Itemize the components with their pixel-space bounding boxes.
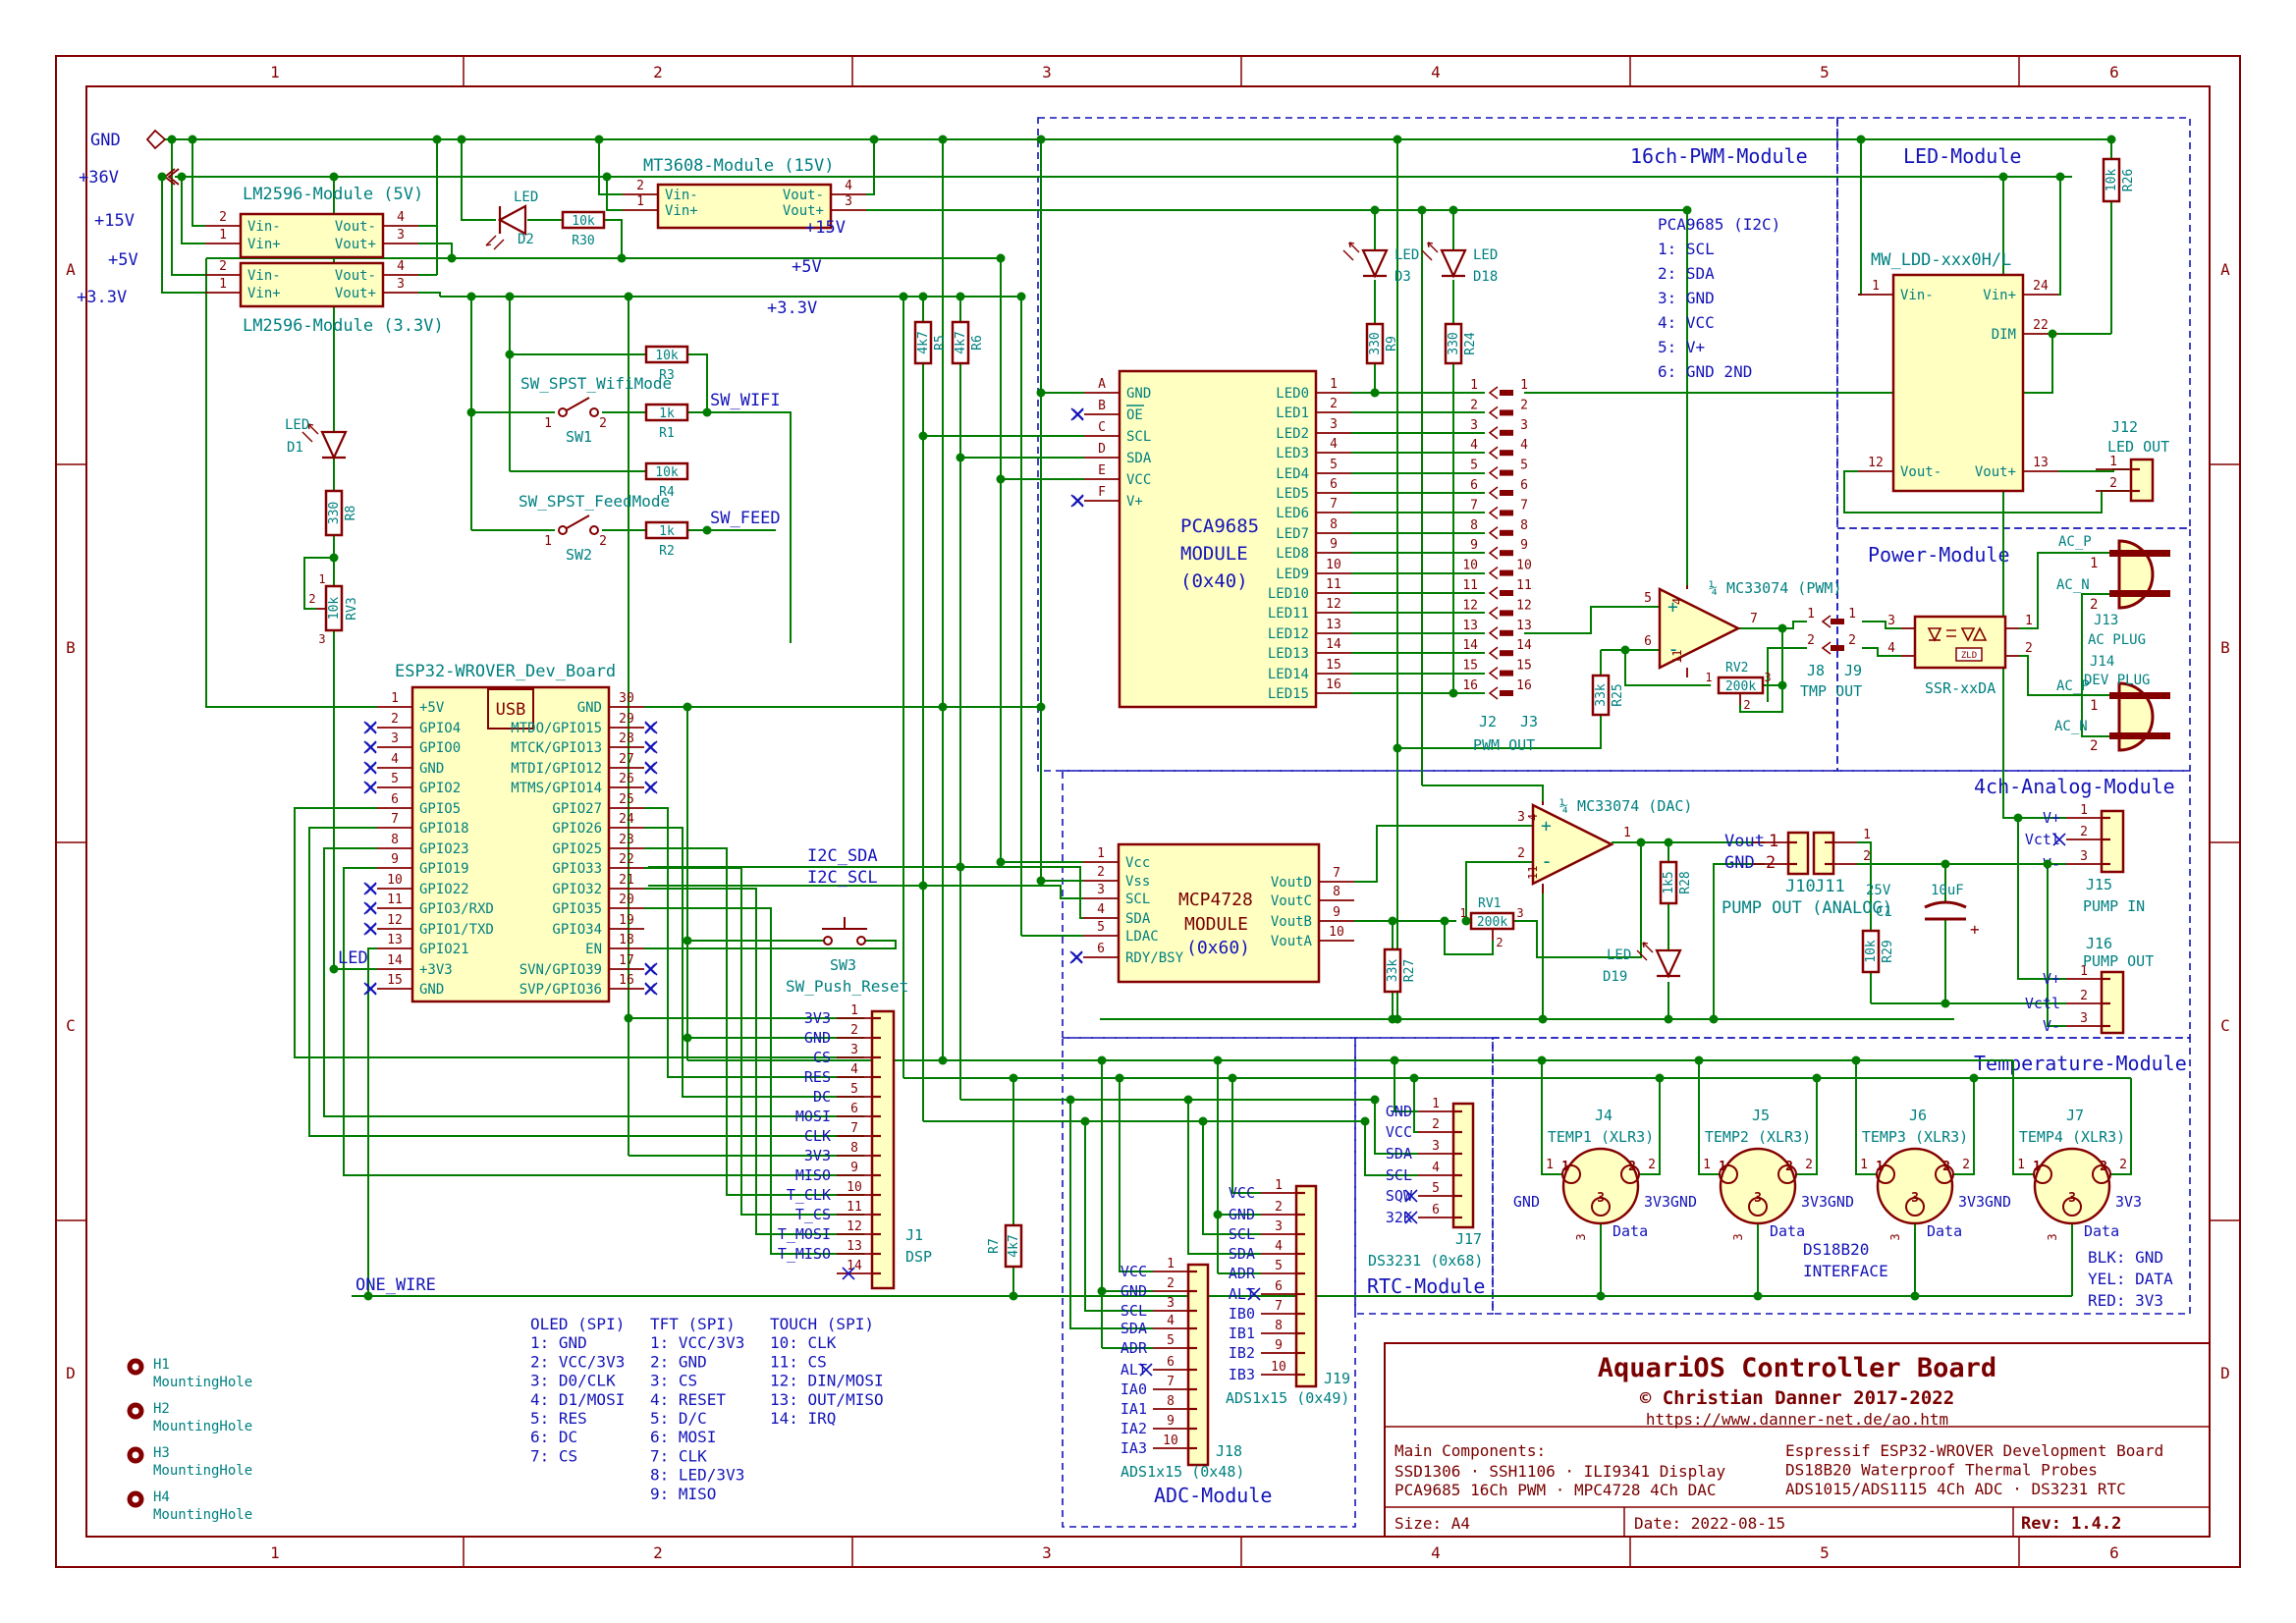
svg-text:28: 28 [619,731,634,746]
svg-text:ALT: ALT [1121,1361,1147,1379]
svg-text:GPIO33: GPIO33 [552,861,602,877]
svg-text:2: 2 [1517,846,1525,861]
svg-text:J3: J3 [1520,713,1538,730]
svg-text:RV1: RV1 [1478,896,1501,911]
svg-text:J14: J14 [2090,654,2114,670]
hole-H4: H4MountingHole [128,1489,253,1523]
svg-text:GPIO34: GPIO34 [552,922,602,938]
svg-text:T_CS: T_CS [795,1206,831,1223]
svg-text:Vout-: Vout- [335,268,376,284]
svg-text:AC_N: AC_N [2056,577,2090,593]
svg-text:10: 10 [847,1180,862,1195]
svg-text:+3.3V: +3.3V [767,298,817,318]
svg-text:3V3: 3V3 [2115,1193,2142,1211]
svg-text:2: 2 [2080,825,2088,839]
svg-text:3: 3 [1520,418,1528,433]
svg-text:SCL: SCL [1386,1166,1412,1184]
svg-text:+15V: +15V [94,211,135,231]
svg-text:R8: R8 [344,506,358,521]
svg-text:ADS1015/ADS1115 4Ch ADC · DS32: ADS1015/ADS1115 4Ch ADC · DS3231 RTC [1785,1480,2126,1498]
svg-text:Data: Data [1927,1222,1962,1240]
svg-text:11: CS: 11: CS [770,1352,827,1371]
svg-text:1: 1 [1807,607,1815,622]
svg-text:V+: V+ [2043,970,2060,988]
svg-text:5: 5 [1330,458,1338,472]
svg-text:V+: V+ [2043,809,2060,827]
svg-text:MTMS/GPIO14: MTMS/GPIO14 [511,781,602,796]
svg-text:SW_FEED: SW_FEED [710,509,781,528]
svg-text:14: 14 [847,1259,862,1273]
svg-text:VCC: VCC [1126,472,1151,488]
svg-text:Rev: 1.4.2: Rev: 1.4.2 [2021,1514,2121,1534]
svg-text:3: 3 [1097,883,1105,897]
svg-text:SCL: SCL [1126,429,1151,445]
svg-text:GPIO27: GPIO27 [552,801,602,817]
svg-text:MTDO/GPIO15: MTDO/GPIO15 [511,721,602,736]
svg-text:6: 6 [391,792,399,807]
svg-text:9: 9 [1470,538,1478,553]
svg-text:PUMP OUT: PUMP OUT [2083,952,2154,970]
svg-text:DS18B20: DS18B20 [1803,1240,1869,1259]
svg-text:ADC-Module: ADC-Module [1154,1484,1272,1507]
svg-text:Vout-: Vout- [335,219,376,235]
svg-text:Vin+: Vin+ [247,286,281,301]
svg-text:GND: GND [1985,1193,2011,1211]
svg-text:2: 2 [599,416,607,431]
svg-text:1: 1 [219,228,227,243]
svg-text:SW2: SW2 [566,546,592,564]
svg-text:3: 3 [1574,1233,1588,1240]
svg-text:27: 27 [619,752,634,767]
svg-text:OE: OE [1126,407,1143,423]
svg-text:4: 4 [850,1062,858,1077]
resistor-R26: 10kR26 [2104,159,2136,201]
svg-text:Vout-: Vout- [783,188,824,203]
svg-text:5: 5 [1432,1181,1440,1196]
svg-text:2: 2 [636,179,644,193]
svg-text:SW_SPST_FeedMode: SW_SPST_FeedMode [519,492,670,511]
svg-text:5: 5 [850,1082,858,1097]
svg-text:SW3: SW3 [830,956,856,974]
svg-text:8: 8 [1520,518,1528,533]
svg-text:1k5: 1k5 [1662,871,1676,893]
svg-text:Size: A4: Size: A4 [1394,1514,1470,1533]
svg-text:GND: GND [419,982,444,998]
svg-text:4: 4 [1431,63,1441,81]
svg-text:10uF: 10uF [1931,883,1964,898]
svg-text:3: 3 [397,277,405,292]
svg-text:GPIO3/RXD: GPIO3/RXD [419,901,494,917]
svg-text:J16: J16 [2086,935,2112,952]
svg-text:18: 18 [619,933,634,947]
svg-text:2: 2 [1097,865,1105,880]
svg-text:15: 15 [1462,659,1478,674]
svg-text:10k: 10k [2105,169,2119,192]
svg-text:C: C [2220,1016,2230,1035]
svg-text:PUMP IN: PUMP IN [2083,897,2145,915]
svg-text:4: 4 [1431,1543,1441,1562]
svg-text:8: 8 [1470,518,1478,533]
svg-text:PCA9685 (I2C): PCA9685 (I2C) [1658,215,1780,234]
svg-text:GND: GND [577,700,602,716]
svg-text:R2: R2 [659,544,675,559]
svg-text:IB2: IB2 [1229,1344,1255,1362]
svg-text:GPIO25: GPIO25 [552,841,602,857]
svg-text:1: 1 [391,691,399,706]
svg-text:11: 11 [1462,578,1478,593]
svg-text:ADR: ADR [1121,1339,1148,1357]
svg-text:LM2596-Module (3.3V): LM2596-Module (3.3V) [243,316,444,336]
svg-text:H2: H2 [153,1401,170,1417]
svg-text:J5: J5 [1752,1107,1770,1124]
svg-text:2: 2 [2090,738,2098,754]
svg-text:4: 4 [1520,438,1528,453]
svg-text:1: 1 [2080,803,2088,818]
switch-SW3: SW3SW_Push_Reset [786,917,908,996]
svg-text:6: 6 [1097,942,1105,956]
svg-text:Vout+: Vout+ [335,286,376,301]
svg-text:USB: USB [496,700,526,720]
svg-text:8: 8 [1333,885,1340,899]
svg-text:1: 1 [1860,1158,1868,1172]
svg-text:9: 9 [391,852,399,867]
svg-text:29: 29 [619,712,634,727]
connector-j11: 12 [1814,828,1871,874]
svg-text:1: SCL: 1: SCL [1658,240,1715,258]
svg-text:11: 11 [1526,866,1540,880]
svg-text:Vout+: Vout+ [335,237,376,252]
svg-text:17: 17 [619,953,634,968]
svg-text:MountingHole: MountingHole [153,1463,252,1479]
svg-text:200k: 200k [1477,915,1507,930]
svg-text:+5V: +5V [419,700,445,716]
svg-text:6: 6 [1432,1203,1440,1217]
svg-text:2: 2 [219,259,227,274]
svg-text:2: 2 [1743,698,1750,712]
svg-text:GND: GND [804,1029,831,1047]
svg-text:B: B [2220,638,2230,657]
plug-j13-ac-plug: AC_P1AC_N2J13AC PLUG [2056,534,2170,648]
svg-text:RV2: RV2 [1725,661,1748,676]
svg-text:LED4: LED4 [1276,466,1309,482]
svg-text:6: 6 [1275,1279,1283,1294]
svg-text:330: 330 [327,502,342,524]
resistor-R27: 33kR27 [1385,949,1417,992]
svg-text:SDA: SDA [1229,1245,1255,1263]
svg-text:https://www.danner-net.de/ao.h: https://www.danner-net.de/ao.htm [1646,1410,1948,1429]
svg-text:5: 5 [391,772,399,786]
svg-text:LED8: LED8 [1276,546,1309,562]
svg-text:5: V+: 5: V+ [1658,338,1705,356]
svg-text:3V3: 3V3 [804,1147,831,1164]
svg-text:1: 1 [1275,1178,1283,1193]
svg-text:R25: R25 [1611,683,1625,706]
svg-text:4: 4 [1432,1161,1440,1175]
svg-text:INTERFACE: INTERFACE [1803,1262,1888,1280]
resistor-R8: 330R8 [326,491,358,535]
svg-text:20: 20 [619,893,634,907]
connector-j19: 1VCC2GND3SCL4SDA5ADR6ALT7IB08IB19IB210IB… [1226,1178,1350,1407]
probe-color-code: BLK: GNDYEL: DATARED: 3V3 [2088,1248,2173,1310]
svg-text:J6: J6 [1909,1107,1927,1124]
svg-text:GPIO4: GPIO4 [419,721,461,736]
svg-text:4: 4 [391,752,399,767]
power-flag-+5V: +5V [108,250,138,270]
svg-text:SW_SPST_WifiMode: SW_SPST_WifiMode [520,374,672,393]
svg-text:15: 15 [1326,658,1341,673]
svg-text:R5: R5 [933,335,948,351]
pca9685-i2c-pinout: PCA9685 (I2C)1: SCL2: SDA3: GND4: VCC5: … [1658,215,1780,381]
svg-text:RES: RES [804,1068,831,1086]
svg-text:MODULE: MODULE [1184,914,1248,935]
svg-text:10k: 10k [1864,940,1879,963]
svg-text:3: 3 [845,194,852,209]
svg-text:LED10: LED10 [1268,586,1309,602]
svg-text:LED: LED [1607,947,1631,963]
svg-text:SSD1306 · SSH1106 · ILI9341 Di: SSD1306 · SSH1106 · ILI9341 Display [1394,1462,1726,1481]
svg-text:ZLD: ZLD [1961,651,1977,661]
svg-text:GND: GND [1121,1282,1147,1300]
plug-j14-dev-plug: J14DEV PLUGAC_P1AC_N2 [2054,654,2170,754]
svg-text:LDAC: LDAC [1125,929,1159,945]
svg-text:1: 1 [636,194,644,209]
svg-text:4: 4 [397,210,405,225]
svg-text:H4: H4 [153,1489,170,1505]
svg-text:3: 3 [1042,1543,1052,1562]
svg-text:B: B [66,638,76,657]
svg-text:Vout-: Vout- [1900,464,1941,480]
svg-text:4: D1/MOSI: 4: D1/MOSI [530,1390,625,1409]
svg-text:VoutC: VoutC [1271,893,1312,909]
svg-text:+3V3: +3V3 [419,962,453,978]
svg-text:TFT (SPI): TFT (SPI) [650,1315,736,1333]
svg-text:Vin-: Vin- [247,219,281,235]
svg-text:DEV PLUG: DEV PLUG [2084,673,2150,688]
svg-text:11: 11 [1326,577,1341,592]
svg-text:1: 1 [2017,1158,2025,1172]
svg-text:SDA: SDA [1126,451,1152,466]
svg-text:13: 13 [847,1239,862,1254]
svg-text:Vin+: Vin+ [1983,288,2016,303]
svg-text:1: 1 [850,1003,858,1018]
svg-text:SCL: SCL [1121,1302,1147,1320]
svg-text:12: 12 [847,1219,862,1234]
svg-text:1k: 1k [659,524,675,539]
svg-text:12: 12 [1868,456,1884,470]
svg-text:9: 9 [850,1161,858,1175]
svg-text:TEMP3 (XLR3): TEMP3 (XLR3) [1862,1128,1968,1146]
svg-text:V-: V- [2043,1017,2060,1035]
svg-text:Data: Data [1770,1222,1805,1240]
hole-H3: H3MountingHole [128,1445,253,1479]
svg-text:GPIO21: GPIO21 [419,942,469,957]
svg-text:GND: GND [1229,1206,1255,1223]
svg-text:11: 11 [1516,578,1532,593]
svg-text:MT3608-Module (15V): MT3608-Module (15V) [643,156,834,176]
oled-spi-pinout: OLED (SPI)1: GND2: VCC/3V33: D0/CLK4: D1… [530,1315,625,1465]
svg-text:Power-Module: Power-Module [1868,543,2010,567]
svg-text:10: 10 [1271,1360,1286,1375]
svg-text:5: 5 [1820,1543,1830,1562]
svg-text:E: E [1098,463,1106,478]
svg-text:1: 1 [1330,377,1338,392]
svg-text:5: 5 [1097,920,1105,935]
svg-text:(0x40): (0x40) [1180,570,1248,592]
svg-text:SQW: SQW [1386,1187,1413,1205]
svg-text:3: 3 [1754,1191,1762,1206]
svg-text:21: 21 [619,873,634,888]
touch-spi-pinout: TOUCH (SPI)10: CLK11: CS12: DIN/MOSI13: … [770,1315,884,1428]
svg-text:33k: 33k [1386,959,1400,983]
svg-text:SVP/GPIO36: SVP/GPIO36 [519,982,602,998]
svg-text:J2: J2 [1479,713,1497,730]
svg-text:MISO: MISO [795,1166,831,1184]
svg-text:C: C [1098,420,1106,435]
svg-text:LED13: LED13 [1268,646,1309,662]
svg-text:9: 9 [1520,538,1528,553]
svg-text:2: 2 [2080,989,2088,1003]
svg-text:J8: J8 [1807,662,1825,679]
svg-text:24: 24 [619,812,634,827]
svg-text:2: 2 [1496,936,1503,949]
svg-text:4: 4 [1670,598,1684,605]
svg-text:IB3: IB3 [1229,1366,1255,1383]
svg-text:C: C [66,1016,76,1035]
svg-text:GPIO32: GPIO32 [552,882,602,897]
svg-text:Vctl: Vctl [2025,995,2060,1012]
svg-text:1: 1 [1876,1160,1884,1174]
svg-text:Vin+: Vin+ [247,237,281,252]
svg-text:LED-Module: LED-Module [1903,144,2021,168]
svg-text:J4: J4 [1595,1107,1613,1124]
svg-text:7: 7 [1750,612,1758,626]
svg-text:¼ MC33074 (DAC): ¼ MC33074 (DAC) [1559,797,1692,815]
svg-text:14: 14 [1516,638,1532,653]
svg-text:12: 12 [1462,598,1478,613]
svg-text:4k7: 4k7 [1007,1234,1021,1257]
svg-text:CS: CS [813,1049,831,1066]
svg-text:4: 4 [397,259,405,274]
svg-text:2: 2 [1275,1200,1283,1215]
svg-text:GPIO26: GPIO26 [552,821,602,837]
svg-text:J7: J7 [2066,1107,2084,1124]
svg-text:LED9: LED9 [1276,567,1309,582]
svg-text:2: 2 [1848,633,1856,648]
svg-text:IA0: IA0 [1121,1380,1147,1398]
svg-text:15: 15 [1516,659,1532,674]
svg-text:J17: J17 [1455,1230,1482,1248]
svg-text:LED5: LED5 [1276,486,1309,502]
svg-text:ESP32-WROVER_Dev_Board: ESP32-WROVER_Dev_Board [395,662,616,681]
svg-text:J10: J10 [1785,877,1816,896]
svg-text:R30: R30 [572,234,594,248]
svg-text:SW_WIFI: SW_WIFI [710,391,781,410]
svg-text:11: 11 [847,1200,862,1215]
svg-text:AC PLUG: AC PLUG [2088,632,2146,648]
svg-text:VCC: VCC [1386,1123,1412,1141]
svg-text:IB0: IB0 [1229,1305,1255,1323]
j8-j9-tmp-out: 1122J8J9TMP OUT [1800,607,1862,700]
svg-text:3: CS: 3: CS [650,1372,697,1390]
resistor-R1: 1kR1 [646,405,687,441]
svg-text:PCA9685: PCA9685 [1180,515,1259,537]
svg-text:RDY/BSY: RDY/BSY [1125,950,1184,966]
svg-text:+: + [1541,816,1552,837]
svg-text:2: 2 [1330,397,1338,411]
svg-text:RV3: RV3 [345,597,359,620]
svg-text:4: VCC: 4: VCC [1658,313,1715,332]
svg-text:LED2: LED2 [1276,426,1309,442]
svg-text:13: 13 [1516,619,1532,633]
svg-text:7: 7 [1167,1375,1175,1389]
resistor-R30: 10kR30 [563,212,604,248]
svg-text:4: RESET: 4: RESET [650,1390,726,1409]
svg-text:6: 6 [1520,478,1528,493]
title-block: AquariOS Controller Board© Christian Dan… [1385,1343,2210,1537]
svg-text:1: VCC/3V3: 1: VCC/3V3 [650,1333,744,1352]
svg-text:D: D [66,1364,76,1382]
schematic-canvas: 16ch-PWM-ModuleLED-ModulePower-Module4ch… [0,0,2296,1623]
svg-text:TEMP4 (XLR3): TEMP4 (XLR3) [2019,1128,2125,1146]
svg-text:25V: 25V [1866,883,1891,898]
j2-j3-pwm-out: 1122334455667788991010111112121313141415… [1462,378,1538,754]
svg-text:Vin+: Vin+ [665,203,698,219]
power-flags: GND+36V+15V+5V+3.3V [77,131,179,307]
svg-text:3: 3 [2068,1191,2076,1206]
svg-text:6: 6 [2109,1543,2119,1562]
svg-text:BLK: GND: BLK: GND [2088,1248,2163,1267]
svg-text:GND: GND [1386,1103,1412,1120]
svg-text:DS3231 (0x68): DS3231 (0x68) [1368,1252,1483,1270]
svg-text:2: 2 [1470,398,1478,412]
svg-text:1: 1 [1167,1257,1175,1271]
svg-text:15: 15 [387,973,403,988]
svg-text:2: 2 [1942,1160,1950,1174]
svg-text:© Christian Danner 2017-2022: © Christian Danner 2017-2022 [1640,1387,1954,1409]
power-flag-+15V: +15V [94,211,135,231]
svg-text:3: 3 [1731,1233,1745,1240]
svg-text:3: 3 [1888,1233,1902,1240]
svg-text:PWM OUT: PWM OUT [1473,736,1535,754]
svg-text:10k: 10k [572,214,595,229]
svg-text:IA3: IA3 [1121,1439,1147,1457]
svg-text:MCP4728: MCP4728 [1178,890,1253,910]
svg-text:D2: D2 [518,232,534,247]
svg-text:IA2: IA2 [1121,1420,1147,1437]
svg-text:Data: Data [1613,1222,1648,1240]
svg-text:9: MISO: 9: MISO [650,1485,716,1503]
svg-text:EN: EN [585,942,602,957]
svg-text:VoutA: VoutA [1271,934,1313,949]
svg-text:5: 5 [1520,459,1528,473]
svg-text:OLED (SPI): OLED (SPI) [530,1315,625,1333]
svg-text:2: 2 [2100,1160,2107,1174]
xlr-connectors: J4TEMP1 (XLR3)123123GND3V3DataJ5TEMP2 (X… [1513,1107,2142,1241]
svg-text:D: D [1098,442,1106,457]
svg-text:3V3: 3V3 [804,1009,831,1027]
svg-text:LED3: LED3 [1276,446,1309,461]
svg-text:7: CLK: 7: CLK [650,1446,707,1465]
svg-text:I2C_SCL: I2C_SCL [807,868,878,888]
svg-text:LED: LED [338,948,368,968]
svg-text:13: 13 [1326,618,1341,632]
svg-text:MTDI/GPIO12: MTDI/GPIO12 [511,761,602,777]
svg-text:9: 9 [1330,537,1338,552]
svg-text:2: 2 [1863,849,1871,864]
svg-text:3: 3 [1432,1139,1440,1154]
svg-text:D: D [2220,1364,2230,1382]
svg-text:1: 1 [2109,455,2117,469]
